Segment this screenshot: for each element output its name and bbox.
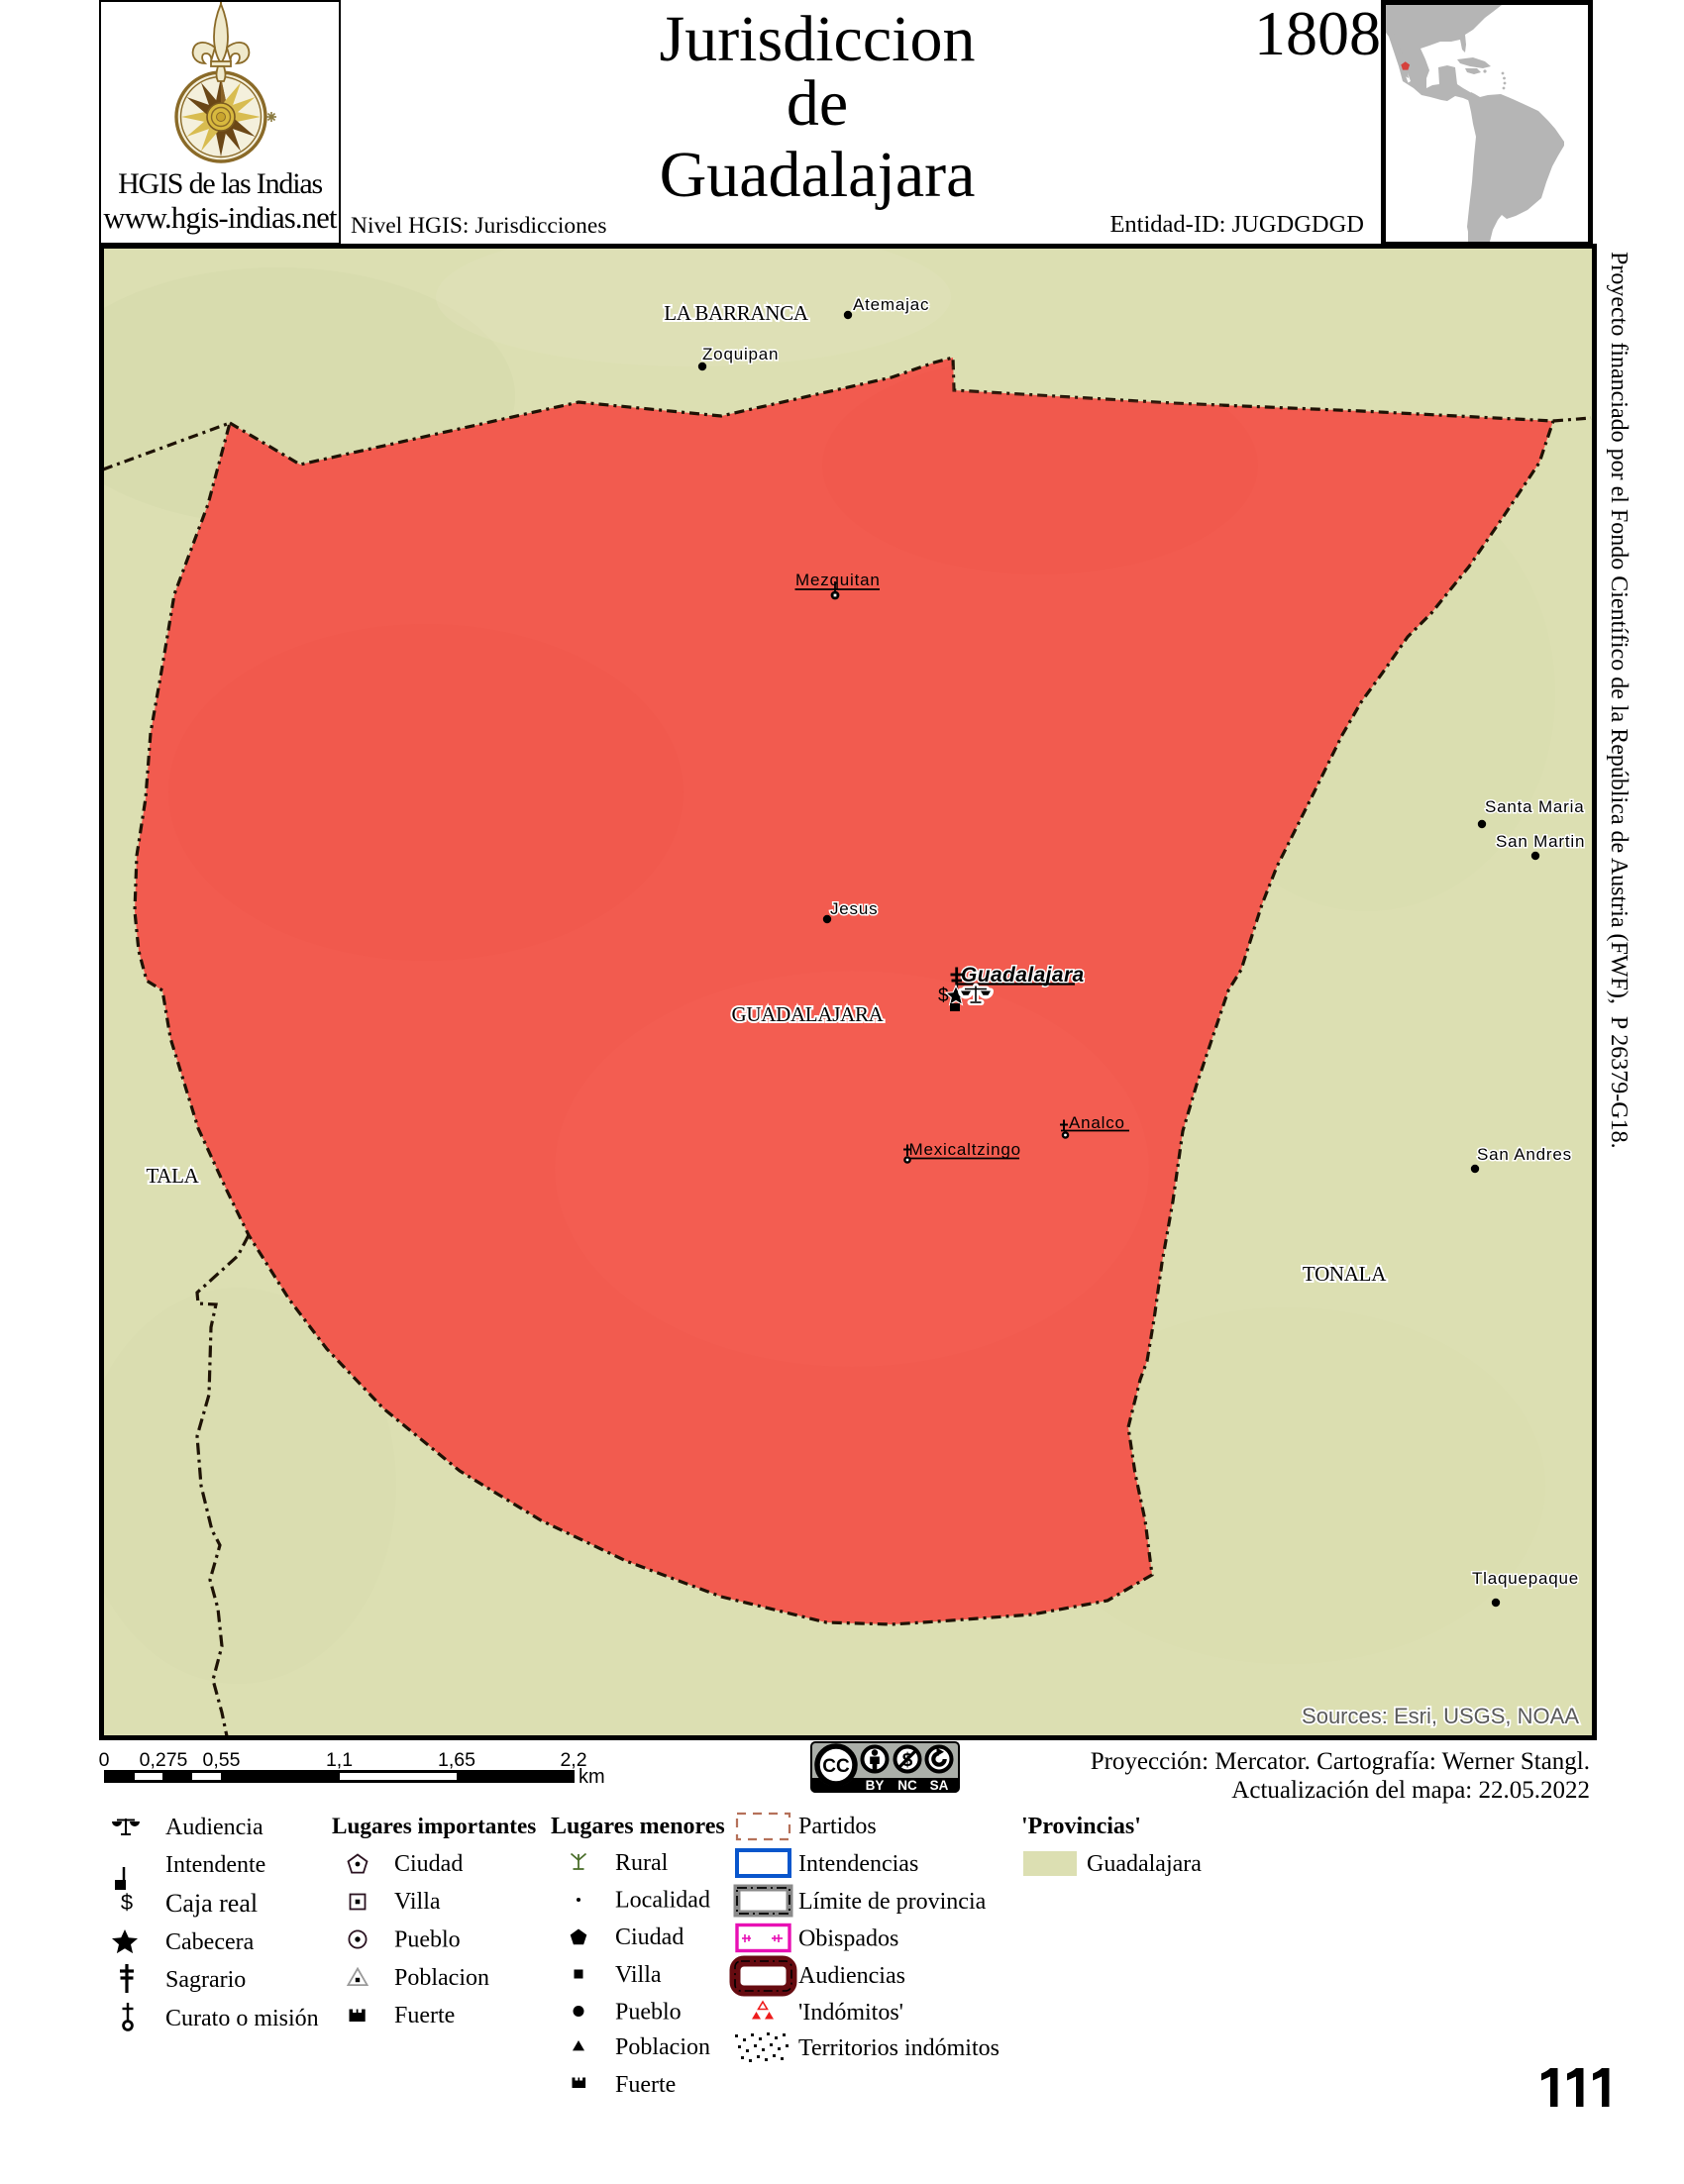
svg-text:Jesus: Jesus: [830, 899, 878, 918]
svg-text:Pueblo: Pueblo: [615, 2000, 682, 2026]
svg-text:Caja real: Caja real: [165, 1889, 258, 1918]
svg-text:Partidos: Partidos: [798, 1814, 877, 1839]
svg-text:Poblacion: Poblacion: [615, 2034, 710, 2060]
svg-text:'Indómitos': 'Indómitos': [798, 2000, 903, 2026]
svg-text:Audiencias: Audiencias: [798, 1963, 905, 1989]
svg-text:Fuerte: Fuerte: [615, 2072, 676, 2098]
svg-text:km: km: [579, 1766, 605, 1788]
svg-text:Sources: Esri, USGS, NOAA: Sources: Esri, USGS, NOAA: [1302, 1704, 1579, 1728]
svg-text:Rural: Rural: [615, 1850, 669, 1876]
svg-text:Atemajac: Atemajac: [853, 295, 929, 314]
svg-text:TALA: TALA: [146, 1164, 199, 1188]
svg-text:Villa: Villa: [615, 1962, 662, 1988]
svg-text:Intendencias: Intendencias: [798, 1851, 918, 1877]
svg-text:Audiencia: Audiencia: [165, 1815, 263, 1840]
svg-text:Límite de provincia: Límite de provincia: [798, 1889, 987, 1915]
svg-text:Poblacion: Poblacion: [394, 1965, 489, 1991]
svg-text:Analco: Analco: [1069, 1113, 1125, 1132]
svg-text:Fuerte: Fuerte: [394, 2003, 455, 2028]
svg-text:Mezquitan: Mezquitan: [795, 571, 881, 589]
svg-text:1,65: 1,65: [438, 1749, 475, 1771]
svg-text:0,275: 0,275: [140, 1749, 188, 1771]
svg-text:SA: SA: [930, 1778, 949, 1793]
svg-text:Territorios indómitos: Territorios indómitos: [798, 2035, 1000, 2061]
svg-text:$: $: [121, 1890, 133, 1915]
svg-text:San Andres: San Andres: [1477, 1145, 1572, 1164]
svg-text:0,55: 0,55: [203, 1749, 241, 1771]
svg-text:NC: NC: [897, 1778, 917, 1793]
svg-text:Zoquipan: Zoquipan: [702, 345, 779, 364]
svg-text:Ciudad: Ciudad: [394, 1851, 463, 1877]
svg-text:Villa: Villa: [394, 1889, 441, 1915]
svg-text:Ciudad: Ciudad: [615, 1924, 684, 1950]
svg-text:Curato o misión: Curato o misión: [165, 2006, 319, 2031]
svg-text:LA BARRANCA: LA BARRANCA: [664, 301, 809, 325]
svg-text:Localidad: Localidad: [615, 1888, 710, 1914]
svg-text:TONALA: TONALA: [1303, 1262, 1387, 1286]
svg-text:$: $: [938, 986, 949, 1006]
svg-text:Cabecera: Cabecera: [165, 1929, 255, 1955]
svg-text:0: 0: [99, 1749, 110, 1771]
svg-text:'Provincias': 'Provincias': [1021, 1814, 1141, 1839]
svg-text:Lugares importantes: Lugares importantes: [332, 1814, 536, 1839]
svg-text:CC: CC: [822, 1756, 850, 1777]
svg-text:Obispados: Obispados: [798, 1926, 898, 1952]
svg-text:Mexicaltzingo: Mexicaltzingo: [909, 1140, 1021, 1159]
svg-text:San Martin: San Martin: [1496, 832, 1585, 851]
svg-text:Guadalajara: Guadalajara: [1087, 1851, 1202, 1877]
svg-text:Santa Maria: Santa Maria: [1485, 797, 1584, 816]
svg-text:BY: BY: [866, 1778, 885, 1793]
svg-text:Tlaquepaque: Tlaquepaque: [1472, 1569, 1579, 1588]
svg-text:Intendente: Intendente: [165, 1852, 265, 1878]
svg-text:Lugares menores: Lugares menores: [551, 1814, 725, 1839]
svg-text:Sagrario: Sagrario: [165, 1967, 246, 1993]
svg-text:GUADALAJARA: GUADALAJARA: [731, 1002, 884, 1026]
svg-text:Pueblo: Pueblo: [394, 1927, 461, 1953]
svg-text:1,1: 1,1: [326, 1749, 353, 1771]
